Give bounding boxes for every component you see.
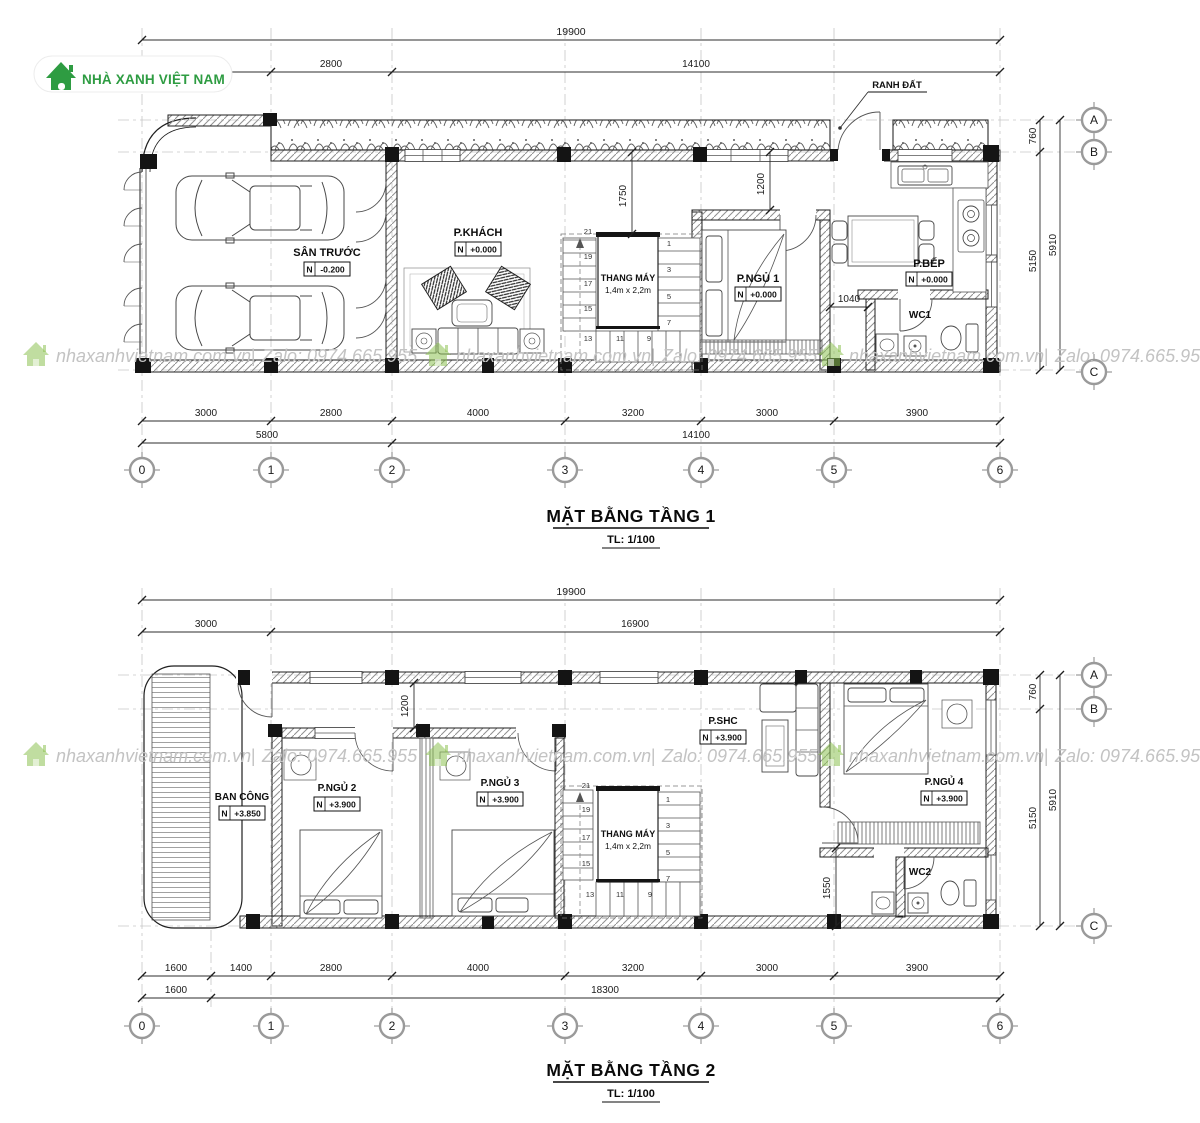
svg-text:N: N xyxy=(316,800,322,810)
svg-text:3000: 3000 xyxy=(756,963,779,974)
svg-text:+3.900: +3.900 xyxy=(329,800,356,810)
chair xyxy=(832,221,847,240)
svg-text:1200: 1200 xyxy=(400,694,411,717)
watermark-house-icon xyxy=(23,742,49,766)
entry-gap xyxy=(834,149,884,163)
svg-text:11: 11 xyxy=(616,890,624,899)
watermark-row-2: nhaxanhvietnam.com.vn | Zalo: 0974.665.9… xyxy=(23,742,1200,766)
dim-total-top: 19900 xyxy=(556,26,585,38)
level-tag-bedroom4: N +3.900 xyxy=(921,791,967,805)
svg-text:C: C xyxy=(1090,919,1099,933)
svg-text:5910: 5910 xyxy=(1048,788,1059,811)
room-label-bedroom1: P.NGỦ 1 xyxy=(737,272,780,285)
svg-text:4000: 4000 xyxy=(467,963,490,974)
svg-text:1: 1 xyxy=(667,239,671,248)
svg-text:9: 9 xyxy=(648,890,652,899)
svg-text:|: | xyxy=(251,746,256,766)
svg-text:Zalo: 0974.665.955: Zalo: 0974.665.955 xyxy=(661,346,818,366)
floor1-title-block: MẶT BẰNG TẦNG 1 TL: 1/100 xyxy=(546,505,715,548)
svg-text:4: 4 xyxy=(698,1019,705,1033)
dining-table xyxy=(848,216,918,266)
car-bottom xyxy=(176,283,344,353)
svg-text:+3.900: +3.900 xyxy=(715,733,742,743)
watermark-row-1: nhaxanhvietnam.com.vn | Zalo: 0974.665.9… xyxy=(23,342,1200,366)
chair xyxy=(832,244,847,263)
floor1-plan: 19900 3000 2800 14100 RANH ĐẤT xyxy=(124,26,1112,548)
svg-text:21: 21 xyxy=(582,781,590,790)
svg-text:13: 13 xyxy=(584,334,592,343)
toilet-wc2 xyxy=(941,880,976,906)
grid-bubble: 0 xyxy=(124,452,160,488)
svg-text:N: N xyxy=(737,290,743,300)
svg-text:5910: 5910 xyxy=(1048,233,1059,256)
living-room: P.KHÁCH N +0.000 xyxy=(404,226,544,354)
svg-text:17: 17 xyxy=(582,833,590,842)
stair-elevator-floor2: THANG MÁY 1,4m x 2,2m 21 19 17 15 13 11 … xyxy=(561,781,702,918)
svg-text:5150: 5150 xyxy=(1028,249,1039,272)
svg-text:|: | xyxy=(651,346,656,366)
svg-text:A: A xyxy=(1090,113,1098,127)
floor1-scale: TL: 1/100 xyxy=(607,534,655,546)
svg-text:3000: 3000 xyxy=(195,408,218,419)
svg-text:1,4m x 2,2m: 1,4m x 2,2m xyxy=(605,285,651,295)
svg-text:1040: 1040 xyxy=(838,294,861,305)
svg-text:|: | xyxy=(651,746,656,766)
balcony-railing xyxy=(152,674,210,920)
chair xyxy=(919,221,934,240)
grid-bubble: 5 xyxy=(816,1008,852,1044)
svg-text:1400: 1400 xyxy=(230,963,253,974)
watermark-house-icon xyxy=(23,342,49,366)
room-label-living: P.KHÁCH xyxy=(454,226,503,239)
svg-text:5: 5 xyxy=(831,1019,838,1033)
grid-bubble: 2 xyxy=(374,1008,410,1044)
balcony-door xyxy=(238,683,272,717)
floor2-title-block: MẶT BẰNG TẦNG 2 TL: 1/100 xyxy=(546,1059,715,1102)
grid-bubble: 6 xyxy=(982,452,1018,488)
svg-text:Zalo: 0974.665.955: Zalo: 0974.665.955 xyxy=(1054,746,1200,766)
svg-text:nhaxanhvietnam.com.vn: nhaxanhvietnam.com.vn xyxy=(456,746,651,766)
svg-text:+0.000: +0.000 xyxy=(921,275,948,285)
svg-text:3900: 3900 xyxy=(906,408,929,419)
svg-text:5: 5 xyxy=(831,463,838,477)
floor2-dims-top: 19900 3000 16900 xyxy=(138,586,1004,636)
elevator-label: THANG MÁY xyxy=(601,273,656,283)
svg-text:5150: 5150 xyxy=(1028,806,1039,829)
svg-text:1600: 1600 xyxy=(165,985,188,996)
folding-gate-left xyxy=(124,172,142,342)
svg-text:0: 0 xyxy=(139,463,146,477)
sofa-chaise xyxy=(760,684,796,712)
svg-text:3: 3 xyxy=(667,265,671,274)
brand-logo: NHÀ XANH VIỆT NAM xyxy=(34,56,232,92)
svg-text:|: | xyxy=(251,346,256,366)
floorplan-sheet: 19900 3000 2800 14100 RANH ĐẤT xyxy=(0,0,1200,1123)
blueprint-canvas: 19900 3000 2800 14100 RANH ĐẤT xyxy=(0,0,1200,1123)
svg-text:7: 7 xyxy=(666,874,670,883)
level-tag-family: N +3.900 xyxy=(700,730,746,744)
svg-text:3000: 3000 xyxy=(756,408,779,419)
floor1-title: MẶT BẰNG TẦNG 1 xyxy=(546,505,715,526)
svg-text:N: N xyxy=(479,795,485,805)
floor2-scale: TL: 1/100 xyxy=(607,1088,655,1100)
room-label-bedroom3: P.NGỦ 3 xyxy=(481,776,520,789)
svg-text:5: 5 xyxy=(667,292,671,301)
svg-text:nhaxanhvietnam.com.vn: nhaxanhvietnam.com.vn xyxy=(849,346,1044,366)
svg-text:nhaxanhvietnam.com.vn: nhaxanhvietnam.com.vn xyxy=(56,746,251,766)
grid-bubble: 3 xyxy=(547,1008,583,1044)
svg-text:N: N xyxy=(908,275,914,285)
elevator-label: THANG MÁY xyxy=(601,829,656,839)
grid-bubble: 4 xyxy=(683,452,719,488)
svg-text:17: 17 xyxy=(584,279,592,288)
svg-text:|: | xyxy=(1044,746,1049,766)
floor2-grid-bubbles-bottom: 0 1 2 3 4 5 6 xyxy=(124,1008,1018,1044)
room-label-wc1: WC1 xyxy=(909,310,932,321)
planter-strip-right xyxy=(893,120,988,150)
svg-text:21: 21 xyxy=(584,227,592,236)
svg-text:N: N xyxy=(306,265,312,275)
svg-text:16900: 16900 xyxy=(621,619,649,630)
svg-text:3: 3 xyxy=(666,821,670,830)
svg-text:3200: 3200 xyxy=(622,408,645,419)
svg-text:nhaxanhvietnam.com.vn: nhaxanhvietnam.com.vn xyxy=(456,346,651,366)
svg-text:7: 7 xyxy=(667,318,671,327)
grid-bubble: 5 xyxy=(816,452,852,488)
svg-text:1: 1 xyxy=(268,1019,275,1033)
svg-text:+3.900: +3.900 xyxy=(936,794,963,804)
room-label-bedroom2: P.NGỦ 2 xyxy=(318,781,357,794)
svg-text:1600: 1600 xyxy=(165,963,188,974)
svg-text:1750: 1750 xyxy=(618,184,629,207)
svg-text:2800: 2800 xyxy=(320,59,343,70)
svg-text:Zalo: 0974.665.955: Zalo: 0974.665.955 xyxy=(261,346,418,366)
planter-strip xyxy=(271,120,830,150)
folding-door-yard xyxy=(356,182,386,338)
svg-text:Zalo: 0974.665.955: Zalo: 0974.665.955 xyxy=(261,746,418,766)
svg-text:11: 11 xyxy=(616,334,624,343)
svg-text:nhaxanhvietnam.com.vn: nhaxanhvietnam.com.vn xyxy=(849,746,1044,766)
svg-text:13: 13 xyxy=(586,890,594,899)
grid-bubble: 4 xyxy=(683,1008,719,1044)
car-top xyxy=(176,173,344,243)
floor1-grid-bubbles-bottom: 0 1 2 3 4 5 6 xyxy=(124,452,1018,488)
grid-bubble-row: A xyxy=(1076,102,1112,138)
svg-text:5: 5 xyxy=(666,848,670,857)
room-label-balcony: BAN CÔNG xyxy=(215,790,270,803)
level-tag-bedroom3: N +3.900 xyxy=(477,792,523,806)
svg-text:nhaxanhvietnam.com.vn: nhaxanhvietnam.com.vn xyxy=(56,346,251,366)
room-label-bedroom4: P.NGỦ 4 xyxy=(925,775,964,788)
svg-text:N: N xyxy=(221,809,227,819)
svg-text:+3.900: +3.900 xyxy=(492,795,519,805)
svg-text:14100: 14100 xyxy=(682,430,710,441)
svg-text:|: | xyxy=(1044,346,1049,366)
svg-text:1: 1 xyxy=(666,795,670,804)
bedroom4: P.NGỦ 4 N +3.900 WC2 xyxy=(838,684,980,914)
svg-text:-0.200: -0.200 xyxy=(320,265,345,275)
svg-text:4000: 4000 xyxy=(467,408,490,419)
svg-text:6: 6 xyxy=(997,463,1004,477)
room-label-kitchen: P.BẾP xyxy=(913,257,945,270)
svg-text:3: 3 xyxy=(562,1019,569,1033)
svg-text:+0.000: +0.000 xyxy=(750,290,777,300)
svg-text:Zalo: 0974.665.955: Zalo: 0974.665.955 xyxy=(661,746,818,766)
svg-text:3: 3 xyxy=(562,463,569,477)
entry-door xyxy=(838,112,880,150)
svg-text:N: N xyxy=(457,245,463,255)
svg-text:14100: 14100 xyxy=(682,59,710,70)
room-label-yard: SÂN TRƯỚC xyxy=(293,246,360,259)
level-tag-bedroom1: N +0.000 xyxy=(735,287,781,301)
grid-bubble-row: A xyxy=(1076,657,1112,693)
brand-name: NHÀ XANH VIỆT NAM xyxy=(82,72,225,87)
grid-bubble: 2 xyxy=(374,452,410,488)
grid-bubble: 1 xyxy=(253,452,289,488)
svg-text:+3.850: +3.850 xyxy=(234,809,261,819)
basin-cabinet xyxy=(872,892,894,914)
svg-text:760: 760 xyxy=(1028,683,1039,700)
grid-bubble: 6 xyxy=(982,1008,1018,1044)
bedroom1: P.NGỦ 1 N +0.000 xyxy=(700,230,822,354)
front-yard: SÂN TRƯỚC N -0.200 xyxy=(176,173,361,353)
svg-text:RANH ĐẤT: RANH ĐẤT xyxy=(872,80,922,91)
grid-bubble: 0 xyxy=(124,1008,160,1044)
svg-text:A: A xyxy=(1090,668,1098,682)
svg-text:Zalo: 0974.665.955: Zalo: 0974.665.955 xyxy=(1054,346,1200,366)
svg-text:6: 6 xyxy=(997,1019,1004,1033)
armchair-right xyxy=(486,266,531,309)
svg-text:B: B xyxy=(1090,702,1098,716)
svg-text:1550: 1550 xyxy=(822,876,833,899)
svg-text:19: 19 xyxy=(582,805,590,814)
svg-text:3900: 3900 xyxy=(906,963,929,974)
wardrobe xyxy=(838,822,980,844)
bedroom3: P.NGỦ 3 N +3.900 xyxy=(440,752,554,916)
grid-bubble-row: B xyxy=(1076,134,1112,170)
level-tag-yard: N -0.200 xyxy=(304,262,350,276)
svg-text:B: B xyxy=(1090,145,1098,159)
svg-text:15: 15 xyxy=(584,304,592,313)
svg-text:C: C xyxy=(1090,365,1099,379)
svg-text:5800: 5800 xyxy=(256,430,279,441)
svg-text:19900: 19900 xyxy=(556,586,585,598)
svg-text:2: 2 xyxy=(389,1019,396,1033)
svg-text:2800: 2800 xyxy=(320,963,343,974)
svg-text:1200: 1200 xyxy=(756,172,767,195)
svg-text:3200: 3200 xyxy=(622,963,645,974)
floor2-title: MẶT BẰNG TẦNG 2 xyxy=(546,1059,715,1080)
svg-text:1,4m x 2,2m: 1,4m x 2,2m xyxy=(605,841,651,851)
grid-bubble-row: C xyxy=(1076,908,1112,944)
floor2-dims-right: 760 5150 5910 A B C xyxy=(1028,657,1112,944)
svg-text:+0.000: +0.000 xyxy=(470,245,497,255)
kitchen-dining: P.BẾP N +0.000 WC1 xyxy=(832,162,988,356)
svg-text:9: 9 xyxy=(647,334,651,343)
svg-text:N: N xyxy=(702,733,708,743)
floor2-dims-bottom: 1600 1400 2800 4000 3200 3000 3900 1600 … xyxy=(138,963,1004,1002)
svg-text:15: 15 xyxy=(582,859,590,868)
grid-bubble: 3 xyxy=(547,452,583,488)
svg-text:2800: 2800 xyxy=(320,408,343,419)
room-label-family: P.SHC xyxy=(708,716,737,727)
svg-text:1: 1 xyxy=(268,463,275,477)
level-tag-living: N +0.000 xyxy=(455,242,501,256)
svg-text:0: 0 xyxy=(139,1019,146,1033)
room-label-wc2: WC2 xyxy=(909,867,932,878)
svg-text:19: 19 xyxy=(584,252,592,261)
svg-text:3000: 3000 xyxy=(195,619,218,630)
level-tag-bedroom2: N +3.900 xyxy=(314,797,360,811)
level-tag-balcony: N +3.850 xyxy=(219,806,265,820)
floor1-dims-top: 19900 3000 2800 14100 xyxy=(138,26,1004,76)
bedroom2: P.NGỦ 2 N +3.900 xyxy=(284,750,382,918)
level-tag-kitchen: N +0.000 xyxy=(906,272,952,286)
svg-text:18300: 18300 xyxy=(591,985,619,996)
svg-text:760: 760 xyxy=(1028,127,1039,144)
grid-bubble: 1 xyxy=(253,1008,289,1044)
grid-bubble-row: B xyxy=(1076,691,1112,727)
floor1-dims-bottom: 3000 2800 4000 3200 3000 3900 5800 14100 xyxy=(138,408,1004,447)
svg-text:N: N xyxy=(923,794,929,804)
floor2-plan: 19900 3000 16900 xyxy=(124,586,1112,1102)
svg-text:2: 2 xyxy=(389,463,396,477)
svg-text:4: 4 xyxy=(698,463,705,477)
